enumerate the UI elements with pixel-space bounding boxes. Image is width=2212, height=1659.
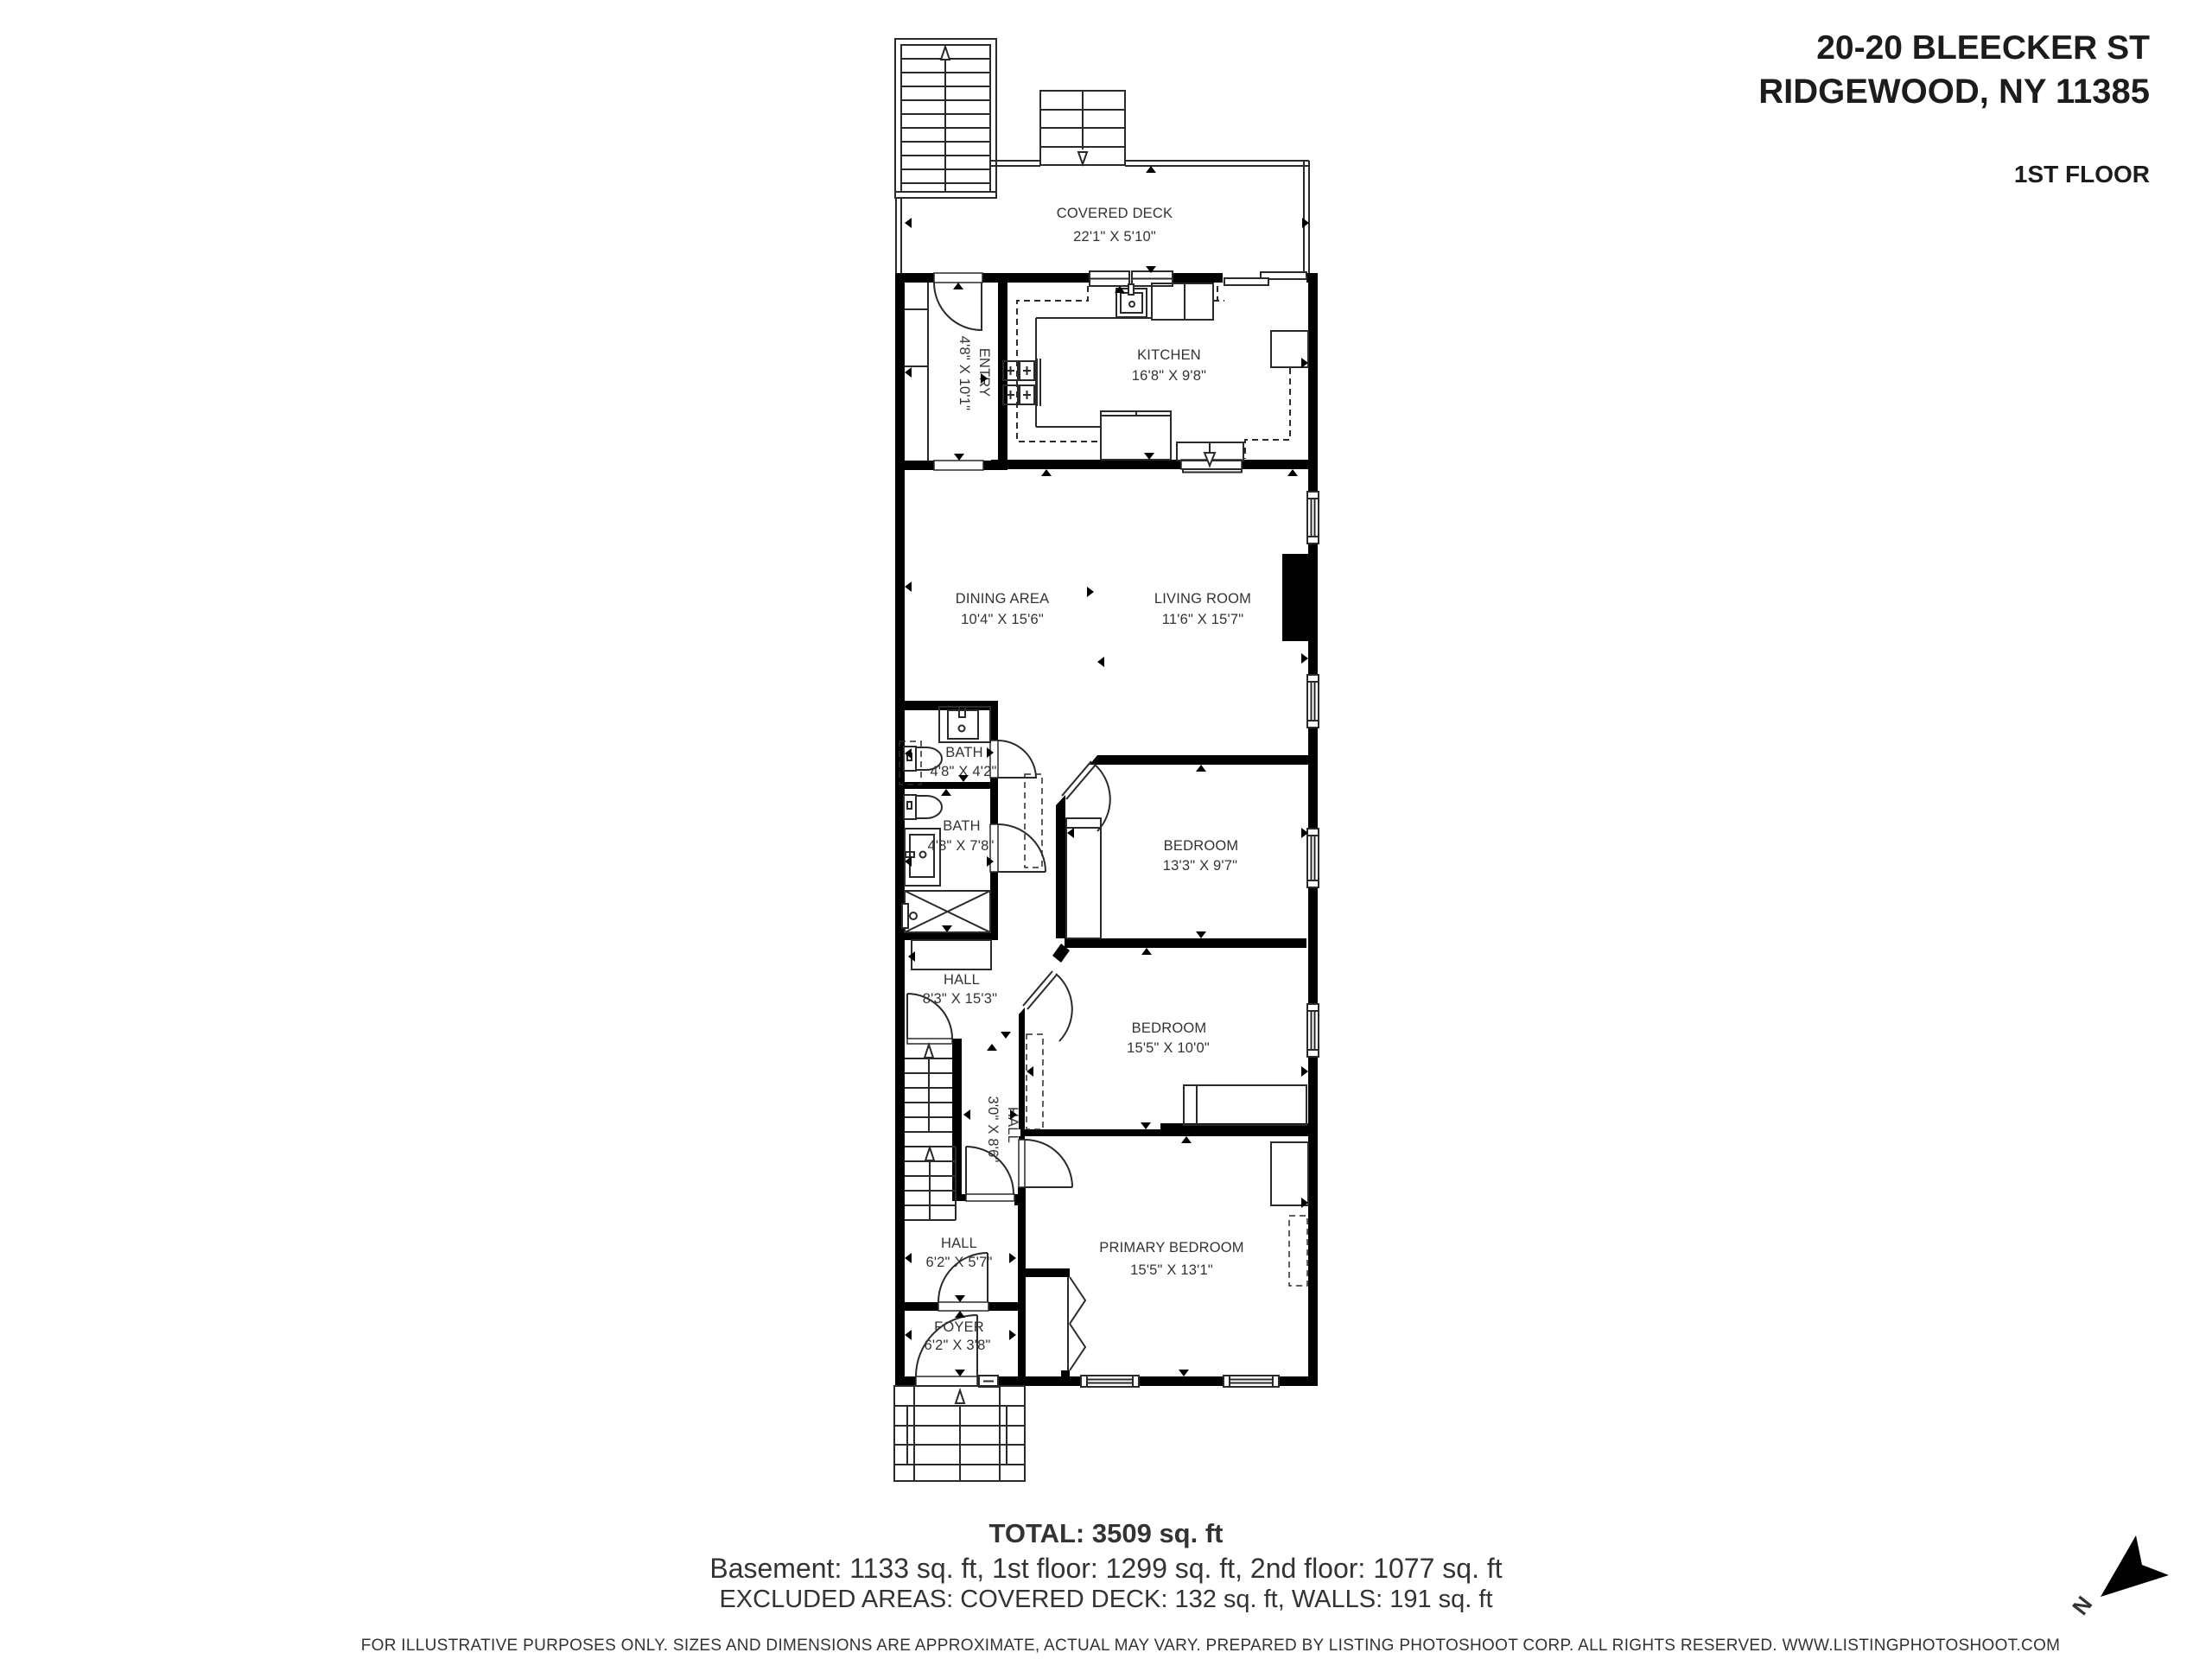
svg-text:3'0" X 8'6": 3'0" X 8'6": [985, 1096, 1001, 1162]
svg-text:15'5" X 10'0": 15'5" X 10'0": [1127, 1040, 1210, 1056]
svg-text:BATH: BATH: [945, 745, 983, 760]
svg-text:TOTAL: 3509 sq. ft: TOTAL: 3509 sq. ft: [988, 1518, 1223, 1548]
svg-text:Basement: 1133 sq. ft, 1st flo: Basement: 1133 sq. ft, 1st floor: 1299 s…: [709, 1553, 1502, 1584]
svg-text:COVERED DECK: COVERED DECK: [1057, 206, 1173, 221]
svg-text:RIDGEWOOD, NY 11385: RIDGEWOOD, NY 11385: [1758, 73, 2150, 111]
svg-text:13'3" X 9'7": 13'3" X 9'7": [1163, 858, 1237, 874]
svg-text:BATH: BATH: [943, 818, 981, 834]
svg-text:ENTRY: ENTRY: [976, 348, 992, 397]
svg-text:FOYER: FOYER: [934, 1319, 984, 1335]
svg-text:BEDROOM: BEDROOM: [1132, 1020, 1207, 1036]
svg-text:HALL: HALL: [941, 1236, 977, 1251]
svg-text:10'4" X 15'6": 10'4" X 15'6": [961, 612, 1044, 627]
svg-text:22'1" X 5'10": 22'1" X 5'10": [1073, 229, 1156, 245]
svg-text:6'2" X 5'7": 6'2" X 5'7": [925, 1255, 992, 1270]
svg-text:11'6" X 15'7": 11'6" X 15'7": [1162, 612, 1244, 627]
svg-text:6'2" X 3'8": 6'2" X 3'8": [924, 1338, 990, 1353]
svg-text:HALL: HALL: [944, 972, 980, 988]
svg-text:LIVING ROOM: LIVING ROOM: [1154, 591, 1251, 607]
svg-text:20-20 BLEECKER ST: 20-20 BLEECKER ST: [1816, 29, 2150, 67]
svg-text:PRIMARY BEDROOM: PRIMARY BEDROOM: [1099, 1240, 1243, 1255]
svg-text:KITCHEN: KITCHEN: [1137, 347, 1201, 363]
svg-text:4'8" X 10'1": 4'8" X 10'1": [957, 336, 972, 410]
svg-text:FOR ILLUSTRATIVE PURPOSES ONLY: FOR ILLUSTRATIVE PURPOSES ONLY. SIZES AN…: [361, 1637, 2061, 1655]
svg-text:8'3" X 15'3": 8'3" X 15'3": [923, 991, 997, 1007]
svg-text:DINING AREA: DINING AREA: [956, 591, 1050, 607]
svg-text:BEDROOM: BEDROOM: [1164, 838, 1239, 854]
svg-text:16'8" X 9'8": 16'8" X 9'8": [1132, 368, 1206, 384]
svg-text:4'8" X 7'8": 4'8" X 7'8": [927, 838, 994, 854]
svg-text:1ST FLOOR: 1ST FLOOR: [2014, 161, 2150, 188]
svg-text:EXCLUDED AREAS: COVERED DECK:: EXCLUDED AREAS: COVERED DECK: 132 sq. ft…: [719, 1586, 1492, 1613]
svg-text:15'5" X 13'1": 15'5" X 13'1": [1130, 1262, 1213, 1278]
